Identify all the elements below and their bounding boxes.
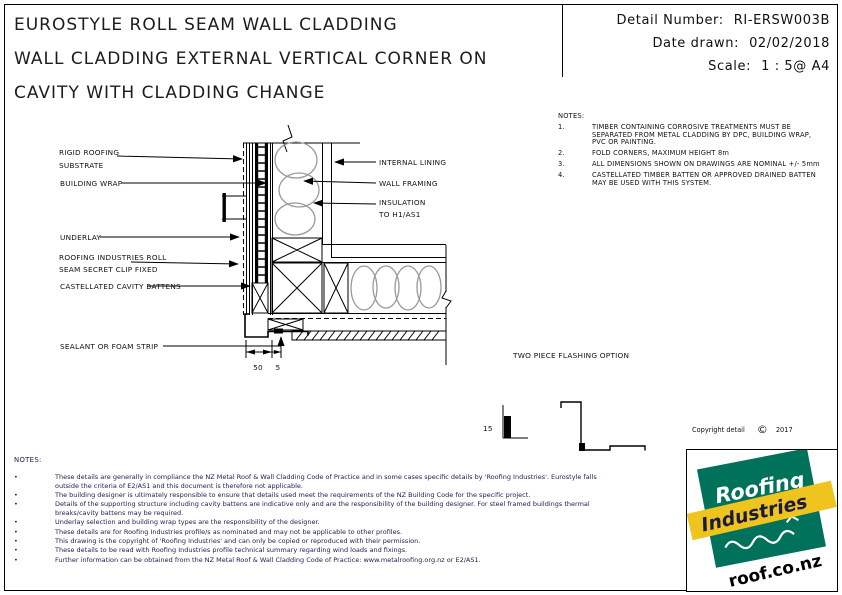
break-symbol-right (442, 291, 451, 308)
notes-bottom: NOTES: • These details are generally in … (14, 456, 614, 565)
break-symbol-top (283, 125, 292, 152)
bullet: • (14, 491, 55, 500)
label-two-piece-flashing: TWO PIECE FLASHING OPTION (512, 351, 629, 360)
detail-number-row: Detail Number:RI-ERSW003B (617, 9, 830, 32)
copyright-text: Copyright detail (692, 426, 745, 434)
dimension-lines (246, 340, 281, 358)
label-insulation-1: INSULATION (379, 198, 426, 207)
scale-label: Scale: (708, 59, 751, 74)
scale-row: Scale:1 : 5@ A4 (617, 55, 830, 78)
bullet: • (14, 528, 55, 537)
title-line-2: WALL CLADDING EXTERNAL VERTICAL CORNER O… (14, 42, 488, 76)
flashing-profile-2-seam (579, 443, 585, 451)
bottom-note-item: • These details are generally in complia… (14, 473, 614, 491)
label-roll-seam-1: ROOFING INDUSTRIES ROLL (59, 253, 167, 262)
bullet: • (14, 500, 55, 518)
title-line-1: EUROSTYLE ROLL SEAM WALL CLADDING (14, 8, 488, 42)
label-internal-lining: INTERNAL LINING (379, 158, 446, 167)
bullet: • (14, 518, 55, 527)
bottom-note-item: • Details of the supporting structure in… (14, 500, 614, 518)
label-roll-seam-2: SEAM SECRET CLIP FIXED (59, 265, 158, 274)
info-block: Detail Number:RI-ERSW003B Date drawn:02/… (617, 9, 830, 78)
bullet: • (14, 546, 55, 555)
flashing-profile-2 (561, 402, 645, 451)
date-drawn-row: Date drawn:02/02/2018 (617, 32, 830, 55)
roll-seam-symbol (223, 193, 226, 222)
copyright-line: Copyright detail © 2017 (692, 425, 832, 435)
bottom-note-text: The building designer is ultimately resp… (55, 491, 614, 500)
roofing-industries-logo: Roofing Industries roof.co.nz (686, 449, 838, 592)
copyright-year: 2017 (776, 426, 793, 434)
copyright-icon: © (757, 425, 768, 435)
bottom-note-text: These details are for Roofing Industries… (55, 528, 614, 537)
bottom-note-item: • Further information can be obtained fr… (14, 556, 614, 565)
insulation-loops-bottom (351, 266, 441, 310)
bullet: • (14, 537, 55, 546)
detail-number-label: Detail Number: (617, 13, 724, 28)
dimension-50: 50 (253, 363, 263, 372)
flashing-profile-1-seam (504, 416, 511, 438)
bottom-note-item: • These details to be read with Roofing … (14, 546, 614, 555)
detail-number-value: RI-ERSW003B (734, 13, 830, 28)
label-insulation-2: TO H1/AS1 (378, 210, 421, 219)
bottom-note-text: These details are generally in complianc… (55, 473, 614, 491)
bullet: • (14, 556, 55, 565)
label-building-wrap: BUILDING WRAP (60, 179, 123, 188)
bullet: • (14, 473, 55, 491)
corner-flashing (245, 314, 308, 337)
logo-graphic: Roofing Industries roof.co.nz (687, 450, 837, 591)
insulation-loops-wall (275, 142, 319, 235)
label-wall-framing: WALL FRAMING (379, 179, 438, 188)
corner-detail-drawing: 50 5 RIGID ROOFING SUBSTRATE BUILDING WR… (0, 95, 690, 455)
bottom-note-text: These details to be read with Roofing In… (55, 546, 614, 555)
bottom-note-text: Details of the supporting structure incl… (55, 500, 614, 518)
label-rigid-roofing-substrate: RIGID ROOFING (59, 148, 119, 157)
bottom-note-text: Further information can be obtained from… (55, 556, 614, 565)
info-block-divider (562, 5, 563, 77)
sealant-blob (274, 329, 283, 334)
label-sealant: SEALANT OR FOAM STRIP (60, 342, 159, 351)
label-rigid-roofing-substrate-2: SUBSTRATE (59, 161, 104, 170)
cladding-hatch-strip (292, 331, 446, 340)
date-drawn-label: Date drawn: (652, 36, 739, 51)
bottom-note-item: • These details are for Roofing Industri… (14, 528, 614, 537)
scale-value: 1 : 5@ A4 (761, 59, 830, 74)
label-cavity-battens: CASTELLATED CAVITY BATTENS (60, 282, 181, 291)
date-drawn-value: 02/02/2018 (749, 36, 830, 51)
dimension-5: 5 (276, 363, 281, 372)
underlay-dashed-lines (244, 143, 447, 319)
cavity-batten-column (255, 143, 268, 283)
dimension-15: 15 (483, 424, 493, 433)
label-underlay: UNDERLAY (60, 233, 102, 242)
bottom-note-text: Underlay selection and building wrap typ… (55, 518, 614, 527)
bottom-note-item: • This drawing is the copyright of 'Roof… (14, 537, 614, 546)
bottom-note-text: This drawing is the copyright of 'Roofin… (55, 537, 614, 546)
notes-bottom-heading: NOTES: (14, 456, 614, 464)
bottom-note-item: • Underlay selection and building wrap t… (14, 518, 614, 527)
leader-lines (100, 156, 376, 346)
bottom-note-item: • The building designer is ultimately re… (14, 491, 614, 500)
